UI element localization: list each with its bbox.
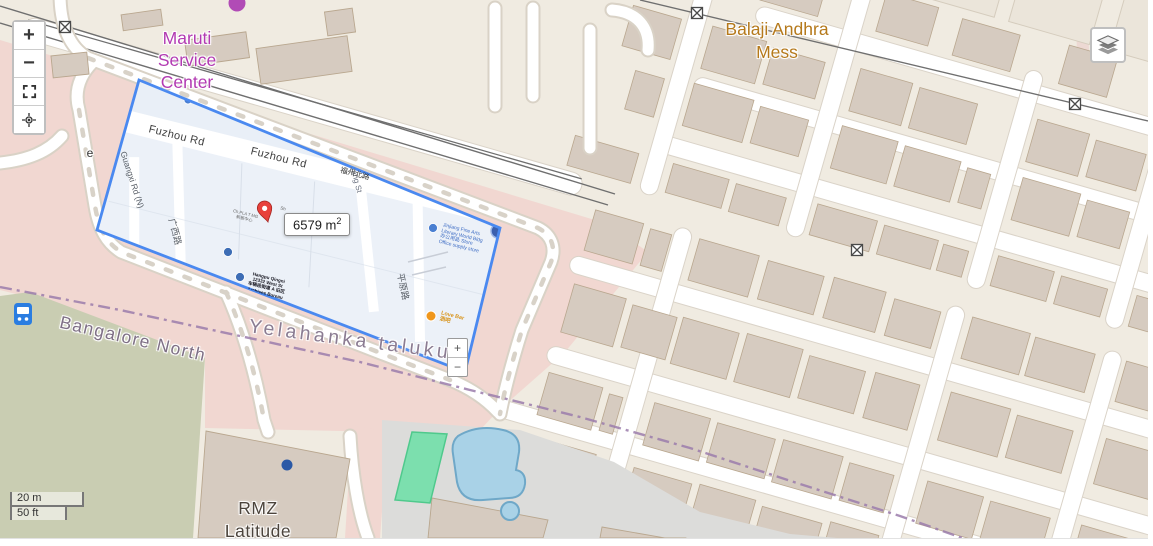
layers-icon xyxy=(1096,34,1120,56)
map-canvas xyxy=(0,0,1148,538)
locate-button[interactable] xyxy=(14,106,44,133)
map-viewport[interactable]: Fuzhou Rd Fuzhou Rd Guangxi Rd (N) 广西路 P… xyxy=(0,0,1148,539)
mini-zoom-in[interactable]: + xyxy=(448,339,467,358)
poi-dot-rmz xyxy=(282,460,293,471)
zoom-out-button[interactable]: − xyxy=(14,50,44,78)
layers-control[interactable] xyxy=(1090,27,1126,63)
scale-imperial: 50 ft xyxy=(10,505,67,520)
area-tooltip: 6579 m2 xyxy=(284,213,350,236)
water-pool xyxy=(453,428,526,500)
fullscreen-button[interactable] xyxy=(14,78,44,106)
scale-control: 20 m 50 ft xyxy=(10,492,84,520)
embedded-mini-zoom: + − xyxy=(447,338,468,377)
bus-stop-icon xyxy=(14,303,32,325)
zoom-in-button[interactable]: + xyxy=(14,22,44,50)
fullscreen-icon xyxy=(22,84,37,99)
mini-zoom-out[interactable]: − xyxy=(448,358,467,376)
water-pond xyxy=(501,502,519,520)
page: Fuzhou Rd Fuzhou Rd Guangxi Rd (N) 广西路 P… xyxy=(0,0,1153,546)
zoom-control: + − xyxy=(12,20,46,135)
locate-icon xyxy=(21,112,37,128)
